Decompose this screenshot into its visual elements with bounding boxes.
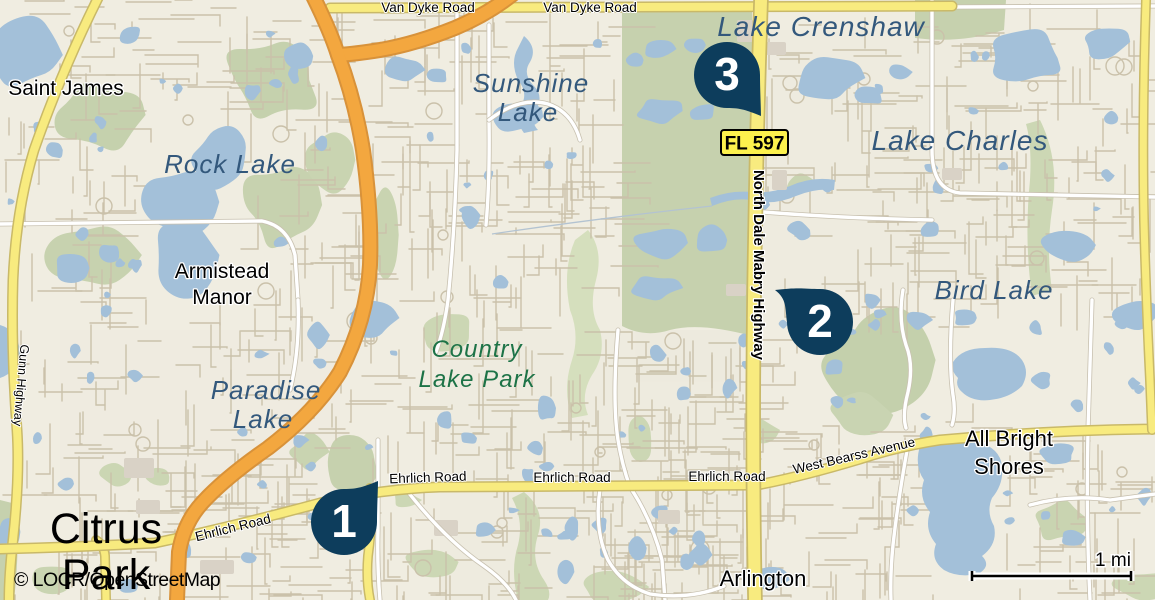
svg-text:Van Dyke Road: Van Dyke Road <box>543 0 637 15</box>
svg-text:Armistead: Armistead <box>175 260 270 283</box>
svg-text:1 mi: 1 mi <box>1095 550 1131 571</box>
svg-text:Ehrlich Road: Ehrlich Road <box>533 470 610 485</box>
svg-text:© LOCR/OpenStreetMap: © LOCR/OpenStreetMap <box>14 569 221 591</box>
svg-text:Saint James: Saint James <box>8 77 124 100</box>
svg-text:Lake Park: Lake Park <box>418 366 536 393</box>
svg-text:Country: Country <box>431 336 523 363</box>
svg-text:Shores: Shores <box>974 454 1044 479</box>
svg-text:Paradise: Paradise <box>211 375 322 405</box>
svg-text:Sunshine: Sunshine <box>473 68 589 98</box>
svg-text:Lake Charles: Lake Charles <box>872 125 1049 156</box>
svg-text:Ehrlich Road: Ehrlich Road <box>688 469 765 484</box>
svg-text:Ehrlich Road: Ehrlich Road <box>389 469 467 487</box>
svg-text:3: 3 <box>714 48 740 100</box>
svg-text:Van Dyke Road: Van Dyke Road <box>381 0 475 15</box>
svg-text:All Bright: All Bright <box>965 426 1053 451</box>
svg-text:Lake: Lake <box>498 97 558 127</box>
svg-text:Lake Crenshaw: Lake Crenshaw <box>717 11 925 42</box>
svg-text:Manor: Manor <box>192 286 252 309</box>
svg-text:Lake: Lake <box>233 404 293 434</box>
svg-text:FL 597: FL 597 <box>725 134 785 155</box>
svg-text:1: 1 <box>331 495 357 547</box>
svg-text:Bird Lake: Bird Lake <box>935 275 1054 305</box>
svg-text:Citrus: Citrus <box>50 505 162 553</box>
svg-text:Arlington: Arlington <box>720 566 807 591</box>
svg-text:2: 2 <box>807 295 833 347</box>
svg-text:Rock Lake: Rock Lake <box>164 149 296 179</box>
svg-text:North Dale Mabry Highway: North Dale Mabry Highway <box>750 170 767 361</box>
